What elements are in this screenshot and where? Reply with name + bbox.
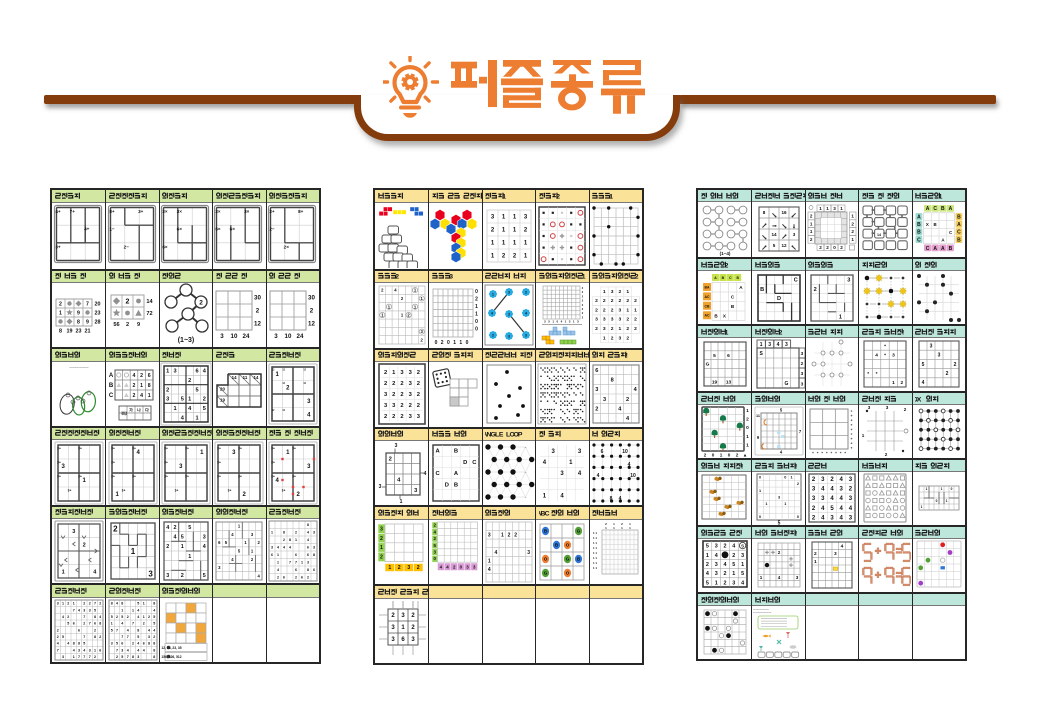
svg-text:1: 1 bbox=[388, 565, 391, 571]
svg-text:4: 4 bbox=[777, 575, 780, 580]
svg-text:3: 3 bbox=[414, 488, 418, 494]
svg-text:3: 3 bbox=[313, 531, 315, 535]
svg-text:4: 4 bbox=[776, 342, 779, 348]
svg-text:4: 4 bbox=[289, 546, 291, 550]
svg-text:4: 4 bbox=[277, 568, 279, 572]
svg-text:1: 1 bbox=[380, 545, 383, 551]
svg-text:8: 8 bbox=[137, 628, 139, 632]
svg-text:G: G bbox=[544, 571, 548, 576]
svg-text:4: 4 bbox=[181, 415, 185, 421]
svg-text:3: 3 bbox=[812, 486, 816, 492]
svg-text:13: 13 bbox=[726, 379, 732, 385]
svg-text:3: 3 bbox=[741, 553, 744, 559]
svg-text:2: 2 bbox=[595, 407, 598, 413]
svg-text:A: A bbox=[948, 206, 952, 212]
svg-text:4: 4 bbox=[277, 546, 279, 550]
svg-text:3: 3 bbox=[88, 648, 90, 652]
svg-text:3: 3 bbox=[800, 351, 803, 357]
svg-text:3: 3 bbox=[847, 277, 850, 283]
svg-text:3+: 3+ bbox=[164, 446, 168, 450]
svg-text:2: 2 bbox=[416, 370, 419, 376]
svg-text:2: 2 bbox=[513, 253, 517, 259]
svg-text:1: 1 bbox=[140, 383, 143, 389]
svg-text:4: 4 bbox=[283, 546, 285, 550]
svg-text:2: 2 bbox=[392, 414, 395, 420]
svg-text:1: 1 bbox=[130, 547, 135, 556]
svg-text:1: 1 bbox=[784, 502, 786, 506]
svg-text:3: 3 bbox=[800, 371, 803, 377]
svg-text:2: 2 bbox=[582, 299, 584, 303]
svg-text:5: 5 bbox=[921, 362, 924, 368]
svg-text:3: 3 bbox=[524, 214, 528, 220]
svg-text:5: 5 bbox=[62, 635, 64, 639]
svg-text:1: 1 bbox=[724, 329, 728, 335]
svg-text:3: 3 bbox=[61, 464, 65, 470]
svg-text:2: 2 bbox=[140, 373, 143, 379]
svg-text:4: 4 bbox=[126, 628, 128, 632]
svg-text:3: 3 bbox=[778, 495, 780, 499]
svg-text:2: 2 bbox=[132, 383, 135, 389]
svg-text:19: 19 bbox=[220, 397, 225, 402]
svg-text:1: 1 bbox=[392, 370, 396, 376]
svg-text:4: 4 bbox=[561, 320, 563, 324]
svg-text:X: X bbox=[917, 396, 922, 402]
svg-text:1: 1 bbox=[502, 214, 506, 220]
svg-text:2: 2 bbox=[381, 288, 384, 293]
svg-text:2: 2 bbox=[840, 245, 843, 250]
svg-text:6: 6 bbox=[72, 622, 74, 626]
svg-text:2: 2 bbox=[723, 571, 726, 577]
svg-text:4: 4 bbox=[543, 460, 547, 466]
svg-text:1: 1 bbox=[245, 540, 248, 545]
svg-text:1: 1 bbox=[59, 311, 62, 317]
svg-text:1: 1 bbox=[513, 227, 517, 233]
svg-text:1: 1 bbox=[82, 478, 86, 484]
svg-text:2: 2 bbox=[400, 414, 403, 420]
svg-text:1: 1 bbox=[502, 240, 506, 246]
svg-text:0: 0 bbox=[759, 475, 761, 479]
svg-text:5: 5 bbox=[153, 615, 155, 619]
svg-text:6: 6 bbox=[99, 648, 101, 652]
svg-text:3: 3 bbox=[416, 414, 420, 420]
svg-text:4: 4 bbox=[136, 450, 140, 456]
svg-text:2: 2 bbox=[812, 515, 816, 521]
svg-text:4: 4 bbox=[841, 543, 844, 549]
svg-text:5: 5 bbox=[188, 525, 191, 531]
svg-text:3: 3 bbox=[603, 317, 606, 323]
svg-text:2: 2 bbox=[94, 628, 96, 632]
svg-text:3: 3 bbox=[929, 343, 932, 349]
svg-text:3: 3 bbox=[166, 397, 169, 403]
svg-text:2: 2 bbox=[525, 291, 527, 295]
svg-text:3: 3 bbox=[110, 642, 112, 646]
svg-text:2: 2 bbox=[295, 576, 297, 580]
svg-text:4: 4 bbox=[62, 615, 64, 619]
svg-text:8: 8 bbox=[72, 642, 74, 646]
svg-text:4: 4 bbox=[397, 477, 401, 483]
svg-text:D: D bbox=[463, 460, 467, 466]
svg-text:2: 2 bbox=[626, 397, 629, 403]
svg-text:2: 2 bbox=[243, 492, 247, 498]
svg-text:3: 3 bbox=[72, 529, 75, 535]
svg-text:3: 3 bbox=[491, 214, 495, 220]
svg-text:2: 2 bbox=[83, 622, 85, 626]
svg-text:1: 1 bbox=[609, 193, 613, 199]
svg-text:!: ! bbox=[626, 353, 628, 359]
svg-text:2: 2 bbox=[626, 299, 629, 305]
svg-text:2: 2 bbox=[635, 274, 639, 280]
svg-text:5: 5 bbox=[706, 580, 709, 586]
svg-text:1: 1 bbox=[475, 312, 478, 318]
svg-text:30: 30 bbox=[254, 295, 261, 302]
svg-text:3: 3 bbox=[148, 635, 150, 639]
svg-text:1: 1 bbox=[301, 561, 303, 565]
svg-text:4: 4 bbox=[148, 628, 150, 632]
svg-text:4: 4 bbox=[488, 567, 491, 573]
svg-text:4: 4 bbox=[618, 407, 622, 413]
svg-text:2: 2 bbox=[132, 393, 135, 399]
svg-text:8: 8 bbox=[153, 602, 155, 606]
svg-text:3+: 3+ bbox=[164, 460, 168, 464]
svg-text:2: 2 bbox=[307, 576, 309, 580]
svg-text:3: 3 bbox=[179, 464, 183, 470]
svg-text:3+: 3+ bbox=[292, 446, 296, 450]
svg-text:7: 7 bbox=[78, 655, 80, 659]
svg-text:0: 0 bbox=[465, 340, 468, 346]
svg-text:5: 5 bbox=[121, 615, 123, 619]
svg-text:3+: 3+ bbox=[228, 488, 232, 492]
svg-text:6: 6 bbox=[295, 553, 297, 557]
svg-text:3: 3 bbox=[88, 608, 90, 612]
svg-text:0: 0 bbox=[557, 320, 559, 324]
svg-text:1: 1 bbox=[453, 340, 456, 346]
svg-text:2: 2 bbox=[703, 452, 706, 457]
svg-text:4: 4 bbox=[840, 506, 844, 512]
svg-text:C: C bbox=[108, 393, 113, 399]
svg-text:6: 6 bbox=[295, 568, 297, 572]
svg-text:2: 2 bbox=[901, 380, 904, 386]
svg-text:3: 3 bbox=[307, 399, 311, 405]
svg-text:3: 3 bbox=[508, 313, 510, 317]
svg-text:4: 4 bbox=[578, 471, 582, 477]
svg-text:4: 4 bbox=[741, 580, 744, 586]
svg-text:1: 1 bbox=[142, 615, 144, 619]
svg-text:C: C bbox=[957, 229, 961, 235]
svg-text:3: 3 bbox=[611, 317, 614, 323]
svg-text:1: 1 bbox=[939, 193, 943, 199]
svg-text:20: 20 bbox=[94, 302, 100, 308]
svg-text:4: 4 bbox=[67, 642, 69, 646]
svg-text:*: * bbox=[876, 371, 878, 377]
svg-text:2: 2 bbox=[475, 297, 478, 303]
svg-text:4: 4 bbox=[93, 570, 97, 576]
svg-text:3+: 3+ bbox=[67, 488, 71, 492]
svg-text:3: 3 bbox=[251, 532, 254, 537]
svg-text:3: 3 bbox=[561, 471, 565, 477]
svg-text:0: 0 bbox=[759, 515, 761, 519]
svg-text:2: 2 bbox=[258, 540, 261, 545]
svg-text:10: 10 bbox=[622, 449, 628, 455]
svg-text:3+: 3+ bbox=[271, 446, 275, 450]
svg-text:4: 4 bbox=[491, 312, 493, 316]
svg-text:1: 1 bbox=[142, 602, 144, 606]
svg-text:3×: 3× bbox=[244, 209, 250, 214]
svg-text:2: 2 bbox=[724, 262, 728, 268]
svg-text:2: 2 bbox=[59, 302, 62, 308]
svg-text:7: 7 bbox=[88, 655, 90, 659]
svg-text:2: 2 bbox=[126, 615, 128, 619]
svg-text:!: ! bbox=[795, 463, 797, 469]
svg-text:5: 5 bbox=[121, 655, 123, 659]
svg-text:12: 12 bbox=[308, 321, 315, 328]
svg-text:2: 2 bbox=[56, 635, 58, 639]
svg-text:4: 4 bbox=[121, 622, 123, 626]
svg-text:C: C bbox=[435, 471, 440, 477]
svg-text:3: 3 bbox=[233, 450, 237, 456]
svg-text:2: 2 bbox=[153, 635, 155, 639]
svg-text:7: 7 bbox=[798, 429, 801, 434]
svg-text:1: 1 bbox=[121, 608, 123, 612]
svg-text:B: B bbox=[108, 383, 113, 389]
svg-text:~~~~~~~~~~~~~~~~: ~~~~~~~~~~~~~~~~ bbox=[753, 611, 772, 614]
svg-text:5: 5 bbox=[67, 622, 69, 626]
svg-text:2: 2 bbox=[392, 392, 395, 398]
svg-text:S: S bbox=[741, 543, 744, 548]
svg-text:4: 4 bbox=[494, 550, 497, 556]
svg-text:8: 8 bbox=[94, 635, 96, 639]
svg-text:6: 6 bbox=[78, 628, 80, 632]
svg-text:4: 4 bbox=[821, 486, 825, 492]
svg-text:2: 2 bbox=[251, 557, 254, 562]
svg-text:3: 3 bbox=[578, 449, 582, 455]
svg-text:1: 1 bbox=[626, 308, 629, 314]
svg-text:3+: 3+ bbox=[185, 474, 189, 478]
svg-text:3: 3 bbox=[937, 352, 940, 358]
svg-text:3+: 3+ bbox=[111, 460, 115, 464]
svg-text:4: 4 bbox=[153, 628, 155, 632]
svg-text:3+: 3+ bbox=[175, 488, 179, 492]
svg-text:24: 24 bbox=[243, 333, 250, 340]
svg-text:30: 30 bbox=[308, 295, 315, 302]
svg-text:2: 2 bbox=[595, 326, 598, 332]
svg-text:7: 7 bbox=[126, 635, 128, 639]
svg-text:3: 3 bbox=[380, 526, 383, 532]
svg-text:6: 6 bbox=[147, 373, 150, 379]
svg-text:3+: 3+ bbox=[218, 460, 222, 464]
svg-text:3: 3 bbox=[384, 403, 388, 409]
svg-text:2: 2 bbox=[945, 371, 948, 377]
svg-text:2: 2 bbox=[732, 553, 735, 559]
svg-text:10: 10 bbox=[630, 473, 636, 479]
svg-text:8: 8 bbox=[78, 642, 80, 646]
svg-text:1: 1 bbox=[765, 502, 767, 506]
svg-text:1: 1 bbox=[61, 570, 64, 576]
svg-text:1: 1 bbox=[892, 380, 895, 386]
svg-text:2: 2 bbox=[556, 193, 560, 199]
svg-text:2: 2 bbox=[626, 326, 629, 332]
svg-text:2: 2 bbox=[618, 289, 621, 295]
svg-text:6: 6 bbox=[313, 568, 315, 572]
svg-text:1: 1 bbox=[277, 561, 279, 565]
svg-text:나: 나 bbox=[137, 406, 141, 412]
svg-text:6: 6 bbox=[301, 576, 303, 580]
svg-text:4: 4 bbox=[137, 642, 139, 646]
svg-text:5: 5 bbox=[203, 573, 206, 579]
svg-text:3: 3 bbox=[307, 464, 311, 470]
svg-text:2: 2 bbox=[611, 336, 614, 342]
svg-text:1−: 1− bbox=[109, 226, 115, 231]
svg-text:5: 5 bbox=[153, 622, 155, 626]
svg-text:8: 8 bbox=[307, 568, 309, 572]
svg-text:2: 2 bbox=[395, 274, 399, 280]
svg-text:0: 0 bbox=[475, 327, 478, 333]
svg-text:2: 2 bbox=[277, 576, 279, 580]
svg-text:19: 19 bbox=[712, 379, 718, 385]
svg-text:2: 2 bbox=[142, 622, 144, 626]
svg-text:3: 3 bbox=[714, 571, 717, 577]
svg-text:2: 2 bbox=[416, 403, 419, 409]
svg-text:1: 1 bbox=[840, 206, 843, 211]
svg-text:4: 4 bbox=[876, 352, 879, 358]
svg-text:8: 8 bbox=[99, 622, 101, 626]
svg-text:1: 1 bbox=[271, 531, 273, 535]
svg-text:A: A bbox=[926, 206, 930, 212]
svg-text:2: 2 bbox=[126, 322, 129, 328]
svg-text:3: 3 bbox=[840, 486, 844, 492]
svg-text:2: 2 bbox=[116, 655, 118, 659]
svg-text:2: 2 bbox=[812, 506, 816, 512]
svg-text:14: 14 bbox=[146, 299, 153, 305]
svg-text:5: 5 bbox=[116, 642, 118, 646]
svg-text:O: O bbox=[566, 571, 570, 576]
svg-text:5: 5 bbox=[83, 642, 85, 646]
svg-text:3+: 3+ bbox=[218, 446, 222, 450]
svg-text:12: 12 bbox=[254, 321, 261, 328]
svg-text:2×: 2× bbox=[162, 209, 168, 214]
svg-text:2−: 2− bbox=[123, 244, 129, 249]
svg-text:4: 4 bbox=[821, 515, 825, 521]
svg-text:2: 2 bbox=[626, 317, 629, 323]
svg-text:2: 2 bbox=[166, 544, 169, 550]
svg-text:3: 3 bbox=[768, 342, 771, 348]
svg-text:~: ~ bbox=[525, 495, 527, 499]
svg-text:9: 9 bbox=[137, 322, 140, 328]
svg-text:9: 9 bbox=[756, 435, 759, 440]
svg-text:2: 2 bbox=[82, 543, 85, 549]
svg-text:3×: 3× bbox=[177, 209, 183, 214]
svg-text:4: 4 bbox=[840, 477, 844, 483]
svg-text:2: 2 bbox=[706, 562, 709, 568]
svg-text:2: 2 bbox=[524, 227, 528, 233]
svg-text:4: 4 bbox=[116, 602, 118, 606]
svg-text:3: 3 bbox=[407, 565, 410, 571]
svg-text:2: 2 bbox=[634, 299, 637, 305]
svg-text:8: 8 bbox=[110, 602, 112, 606]
svg-text:E: E bbox=[499, 432, 504, 438]
svg-text:72: 72 bbox=[146, 311, 152, 317]
svg-text:8: 8 bbox=[59, 329, 62, 335]
svg-text:6: 6 bbox=[121, 642, 123, 646]
svg-text:3: 3 bbox=[569, 320, 571, 324]
svg-text:1: 1 bbox=[492, 293, 494, 297]
svg-text:B: B bbox=[933, 222, 936, 227]
svg-text:2: 2 bbox=[634, 326, 637, 332]
svg-text:1: 1 bbox=[295, 538, 297, 542]
svg-text:1: 1 bbox=[513, 240, 517, 246]
svg-text:6: 6 bbox=[94, 622, 96, 626]
svg-text:~~~~~~~~~~~: ~~~~~~~~~~~ bbox=[69, 365, 89, 369]
svg-text:2: 2 bbox=[814, 287, 817, 293]
svg-text:1: 1 bbox=[732, 571, 735, 577]
svg-text:0: 0 bbox=[746, 425, 749, 431]
svg-text:1: 1 bbox=[603, 289, 606, 295]
svg-text:4: 4 bbox=[830, 496, 834, 502]
svg-text:4: 4 bbox=[203, 544, 206, 550]
svg-text:B: B bbox=[917, 222, 921, 228]
svg-text:1: 1 bbox=[790, 475, 792, 479]
svg-text:A: A bbox=[108, 373, 113, 379]
svg-text:6: 6 bbox=[727, 353, 730, 359]
svg-text:23: 23 bbox=[75, 329, 81, 335]
svg-text:D: D bbox=[777, 296, 781, 302]
svg-text:1: 1 bbox=[565, 320, 567, 324]
svg-text:2: 2 bbox=[723, 543, 726, 549]
svg-text:1: 1 bbox=[925, 487, 927, 491]
svg-text:A: A bbox=[917, 214, 921, 220]
svg-text:3: 3 bbox=[849, 515, 853, 521]
svg-text:7: 7 bbox=[121, 635, 123, 639]
svg-text:(1~3): (1~3) bbox=[178, 337, 195, 344]
svg-text:X: X bbox=[926, 222, 929, 227]
svg-text:A: A bbox=[454, 471, 459, 477]
svg-text:2×: 2× bbox=[216, 209, 222, 214]
svg-text:6: 6 bbox=[307, 546, 309, 550]
svg-text:1: 1 bbox=[524, 253, 528, 259]
svg-text:4: 4 bbox=[140, 393, 143, 399]
svg-text:A: A bbox=[933, 246, 937, 252]
svg-text:2: 2 bbox=[173, 525, 176, 531]
svg-text:7: 7 bbox=[72, 608, 74, 612]
svg-text:1: 1 bbox=[746, 408, 749, 414]
svg-text:2: 2 bbox=[400, 381, 403, 387]
svg-text:1: 1 bbox=[491, 253, 495, 259]
svg-text:4: 4 bbox=[203, 369, 207, 375]
svg-text:4: 4 bbox=[627, 462, 630, 468]
svg-text:1: 1 bbox=[570, 460, 574, 466]
svg-text:8: 8 bbox=[148, 642, 150, 646]
svg-text:3: 3 bbox=[78, 648, 80, 652]
svg-text:10: 10 bbox=[284, 333, 291, 340]
svg-text:1: 1 bbox=[810, 221, 813, 226]
svg-text:3+: 3+ bbox=[132, 474, 136, 478]
svg-text:2: 2 bbox=[411, 625, 415, 631]
svg-text:12, 13, 23, 35: 12, 13, 23, 35 bbox=[161, 646, 181, 650]
svg-text:6: 6 bbox=[307, 553, 309, 557]
svg-text:7: 7 bbox=[116, 648, 118, 652]
svg-text:!: ! bbox=[740, 463, 742, 469]
svg-text:3+: 3+ bbox=[281, 488, 285, 492]
svg-text:1 1: 1 1 bbox=[593, 536, 597, 540]
svg-text:2: 2 bbox=[634, 317, 637, 323]
svg-text:AC: AC bbox=[704, 313, 709, 317]
svg-text:3: 3 bbox=[618, 336, 621, 342]
svg-text:~: ~ bbox=[525, 470, 527, 474]
svg-text:AC: AC bbox=[704, 295, 709, 299]
svg-text:B: B bbox=[941, 206, 945, 212]
svg-text:3: 3 bbox=[603, 397, 606, 403]
svg-text:2: 2 bbox=[626, 336, 629, 342]
svg-text:가: 가 bbox=[129, 406, 133, 412]
